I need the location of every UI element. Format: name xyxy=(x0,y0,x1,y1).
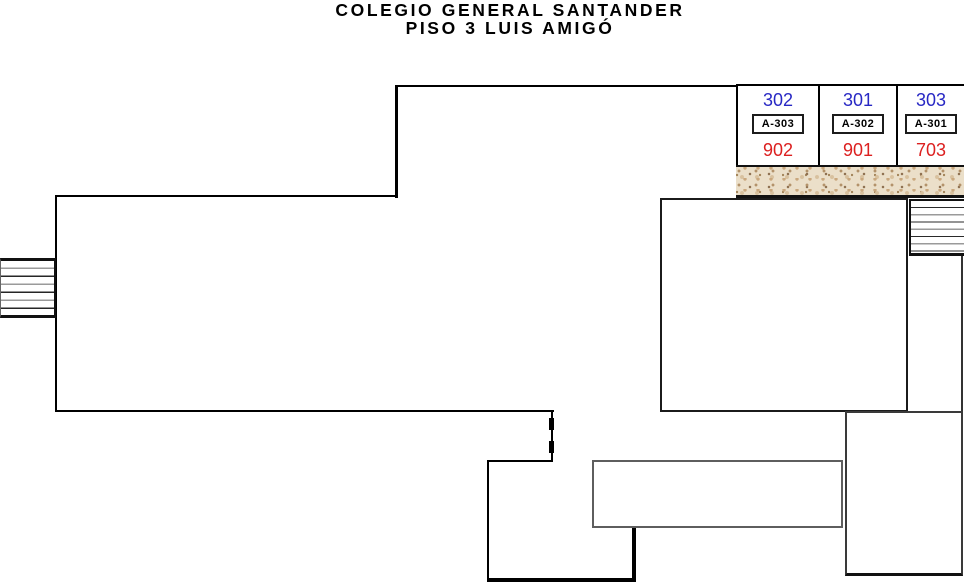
page-title: COLEGIO GENERAL SANTANDER PISO 3 LUIS AM… xyxy=(285,1,735,37)
wall-bottom-horizontal xyxy=(55,410,554,412)
room-number: 301 xyxy=(843,90,873,110)
stairs-right-icon xyxy=(909,199,964,256)
room-number: 302 xyxy=(763,90,793,110)
door-jamb-mark xyxy=(549,441,554,453)
room-bottom-center xyxy=(592,460,843,528)
wall-lower-left-vert xyxy=(487,460,489,582)
wall-upper-left-vert xyxy=(395,85,398,198)
wall-top xyxy=(397,85,738,87)
internal-code: 902 xyxy=(763,140,793,160)
door-plate: A-303 xyxy=(752,114,804,134)
wall-right-edge xyxy=(961,254,963,412)
door-plate: A-302 xyxy=(832,114,884,134)
classroom-label-strip: 302 A-303 902 301 A-302 901 303 A-301 70… xyxy=(736,84,964,165)
internal-code: 901 xyxy=(843,140,873,160)
title-line-1: COLEGIO GENERAL SANTANDER xyxy=(285,1,735,19)
wall-mid-horizontal xyxy=(55,195,398,197)
door-plate: A-301 xyxy=(905,114,957,134)
room-bottom-right xyxy=(845,411,963,576)
door-jamb-mark xyxy=(549,418,554,430)
classroom-cell-2: 301 A-302 901 xyxy=(820,86,898,165)
classroom-cell-1: 302 A-303 902 xyxy=(738,86,820,165)
room-number: 303 xyxy=(916,90,946,110)
internal-code: 703 xyxy=(916,140,946,160)
room-large-right xyxy=(660,198,908,412)
classroom-cell-3: 303 A-301 703 xyxy=(898,86,964,165)
title-line-2: PISO 3 LUIS AMIGÓ xyxy=(285,19,735,37)
wall-lower-bottom xyxy=(487,578,635,582)
floor-plan: COLEGIO GENERAL SANTANDER PISO 3 LUIS AM… xyxy=(0,0,964,582)
hatched-wall-band xyxy=(736,165,964,198)
wall-lower-right-vert xyxy=(632,528,636,582)
stairs-left-icon xyxy=(0,258,56,318)
wall-notch-horizontal xyxy=(487,460,553,462)
